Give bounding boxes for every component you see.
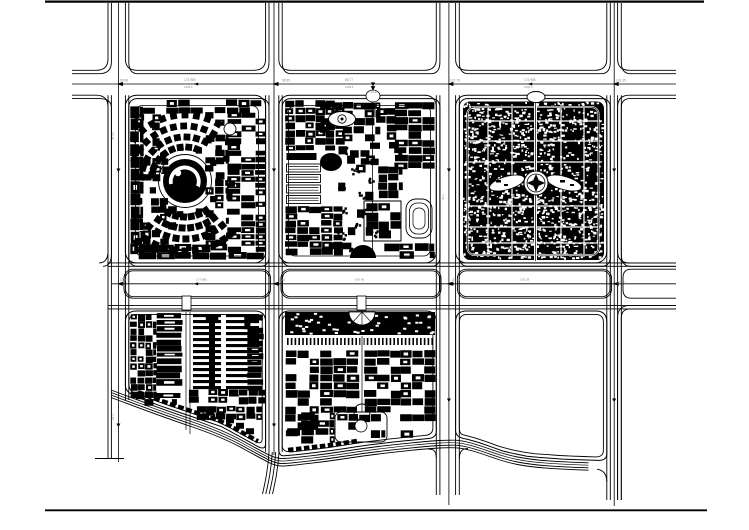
svg-text:35.15: 35.15: [111, 132, 115, 140]
svg-text:173.985: 173.985: [184, 78, 196, 82]
svg-text:173.985: 173.985: [196, 278, 207, 282]
svg-text:20.41: 20.41: [452, 278, 460, 282]
svg-text:12.46: 12.46: [617, 281, 625, 285]
svg-text:88.77: 88.77: [345, 78, 353, 82]
svg-text:1.40: 1.40: [279, 278, 285, 282]
svg-text:30.2: 30.2: [441, 194, 445, 200]
svg-text:122.70: 122.70: [450, 79, 460, 83]
svg-text:99.98: 99.98: [120, 79, 128, 83]
svg-text:155.28: 155.28: [520, 278, 530, 282]
svg-text:98.35: 98.35: [282, 79, 290, 83]
svg-text:2193.5: 2193.5: [184, 85, 193, 89]
svg-text:28.4: 28.4: [111, 414, 115, 420]
svg-text:160.45: 160.45: [355, 278, 365, 282]
svg-text:10.37: 10.37: [120, 278, 128, 282]
svg-text:1139.5: 1139.5: [345, 85, 354, 89]
svg-text:2.0 69.98: 2.0 69.98: [366, 90, 378, 94]
svg-text:173.985: 173.985: [524, 78, 536, 82]
svg-text:35.15: 35.15: [267, 192, 271, 200]
svg-text:101.35: 101.35: [616, 79, 626, 83]
svg-text:2193.5: 2193.5: [524, 85, 533, 89]
